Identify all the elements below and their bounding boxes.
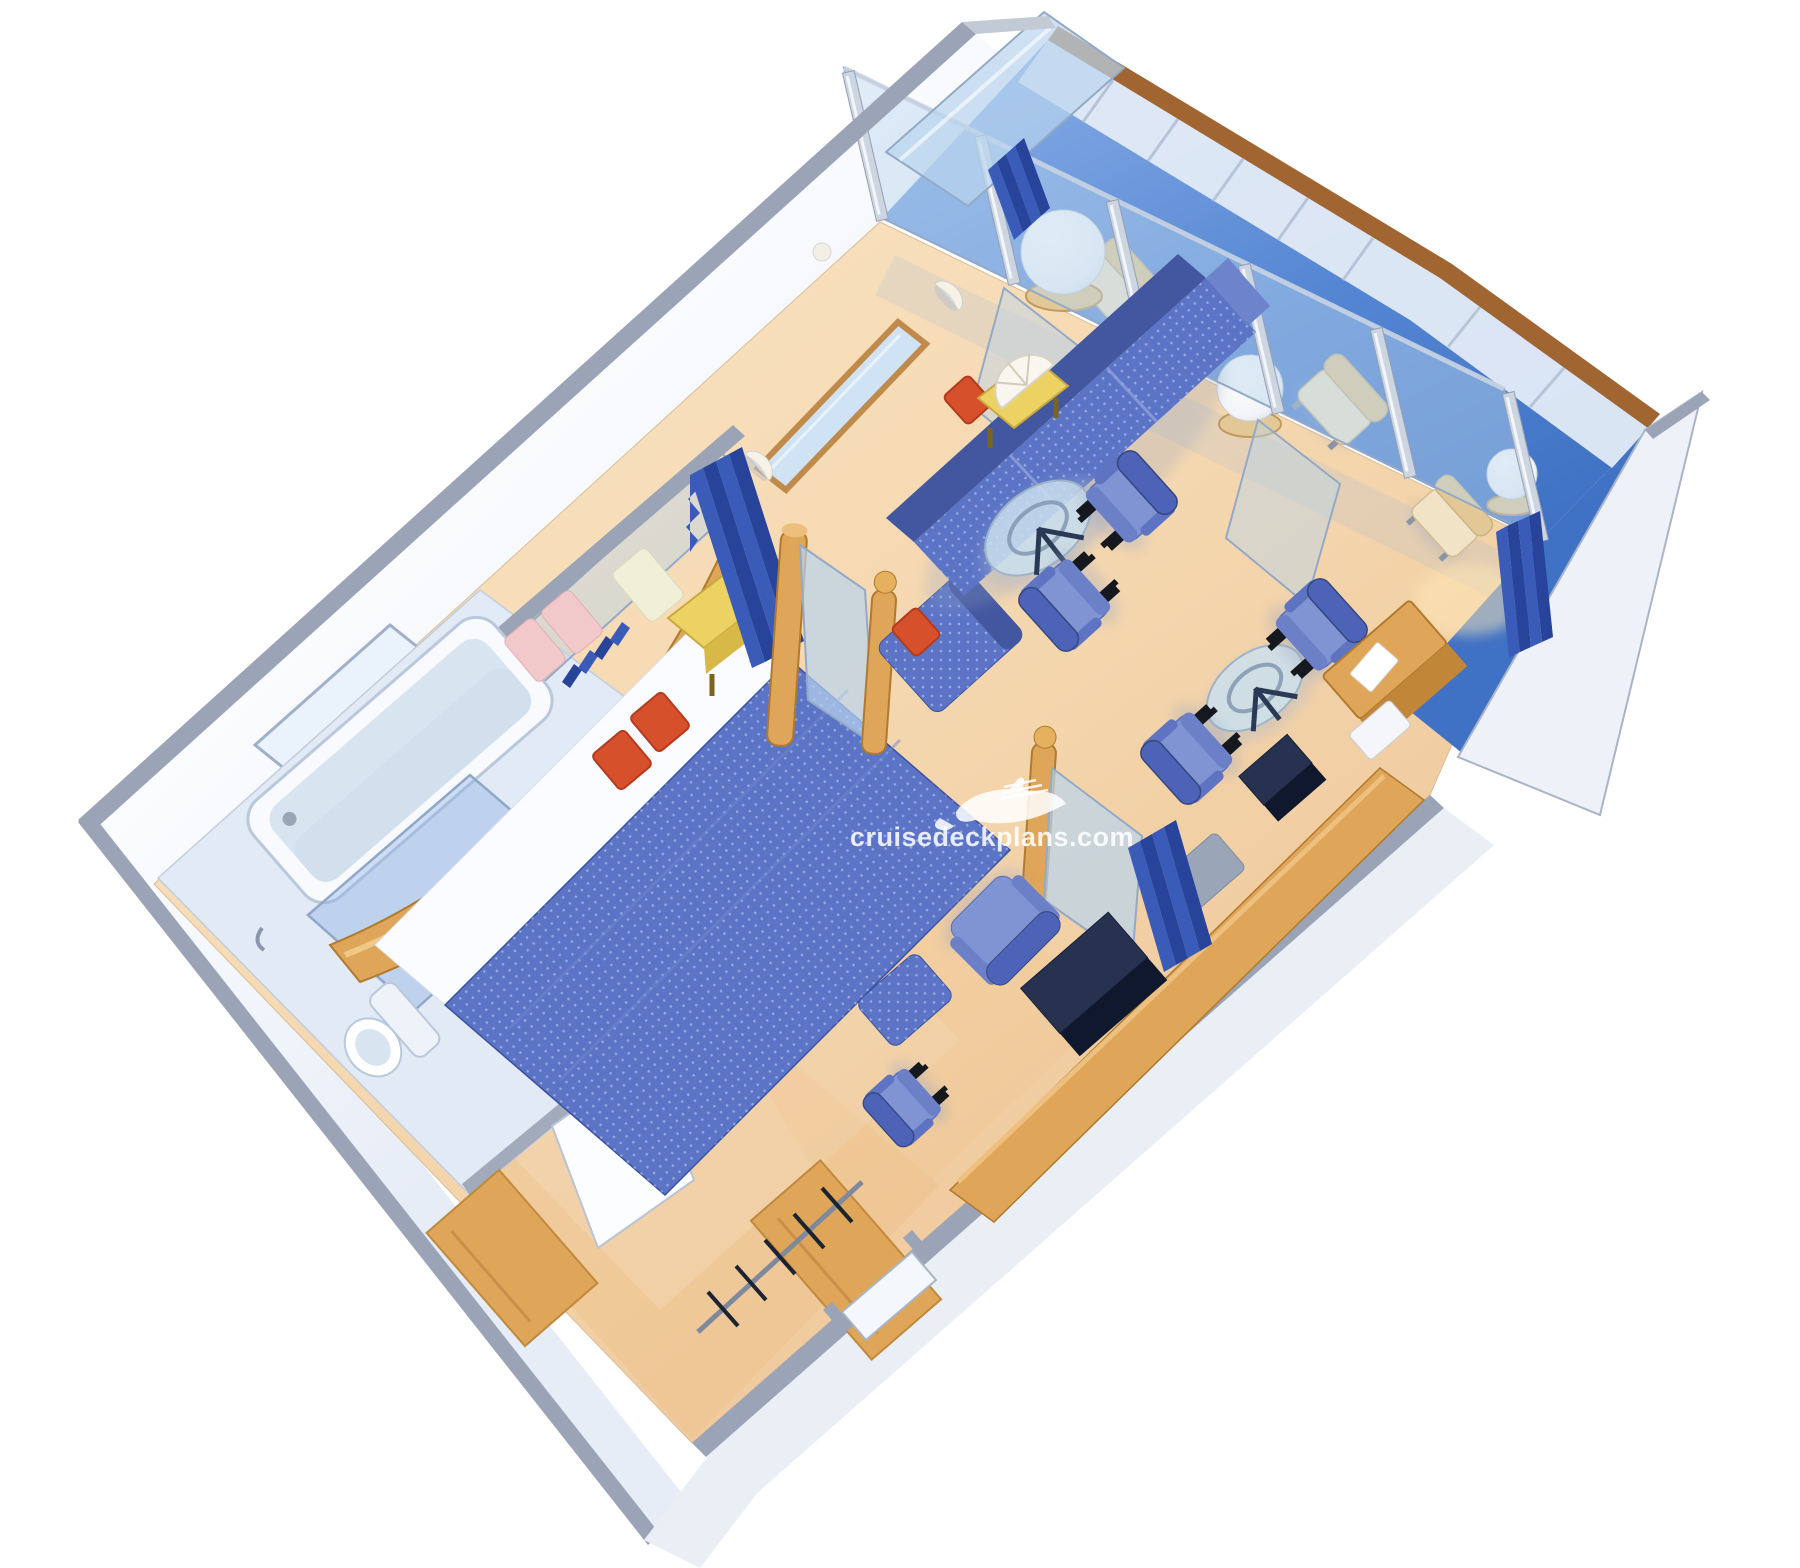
watermark-text: cruisedeckplans.com — [850, 822, 1134, 852]
wall-light — [813, 243, 831, 261]
floorplan-render: cruisedeckplans.com — [0, 0, 1800, 1568]
suite-floorplan-svg: cruisedeckplans.com — [0, 0, 1800, 1568]
